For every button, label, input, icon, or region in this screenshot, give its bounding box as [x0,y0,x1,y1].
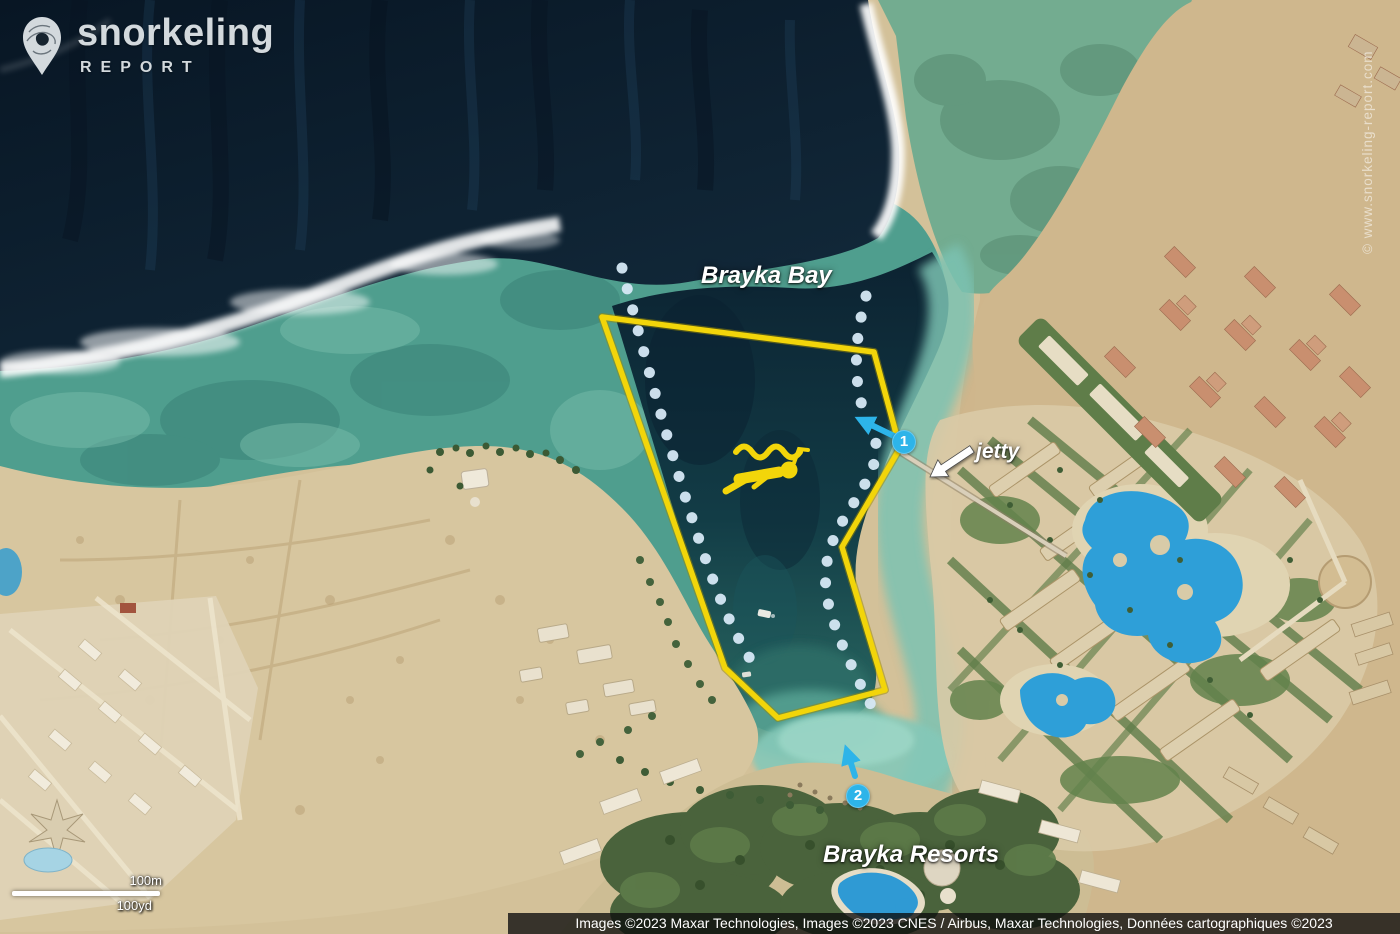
logo-pin-icon [20,14,64,78]
map-attribution: Images ©2023 Maxar Technologies, Images … [508,913,1400,934]
spot-marker-2[interactable]: 2 [846,784,870,808]
logo-title: snorkeling [77,14,274,52]
label-brayka-resorts: Brayka Resorts [823,841,999,869]
logo-subtitle: REPORT [80,59,274,77]
map-canvas[interactable]: snorkeling REPORT Brayka Bay jetty Brayk… [0,0,1400,934]
spot-marker-1[interactable]: 1 [892,430,916,454]
scale-imperial-label: 100yd [88,898,152,913]
label-brayka-bay: Brayka Bay [701,262,832,290]
watermark: © www.snorkeling-report.com [1360,2,1375,254]
scale-bar [12,891,160,896]
satellite-imagery [0,0,1400,934]
scale-metric-label: 100m [98,873,162,888]
label-jetty: jetty [976,440,1019,464]
brand-logo: snorkeling REPORT [20,14,274,78]
